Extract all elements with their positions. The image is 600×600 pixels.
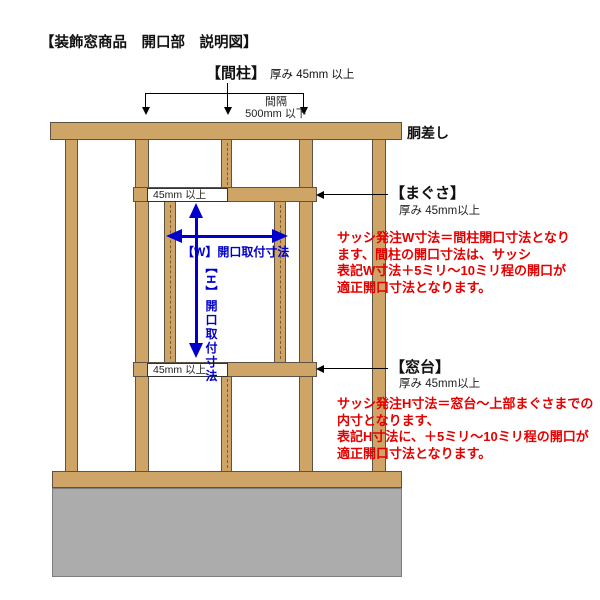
lintel-callout-line (323, 194, 388, 195)
stud-center-lower (221, 375, 232, 472)
base-plate-beam (52, 471, 402, 488)
lintel-label: 【まぐさ】 (390, 182, 465, 203)
down-arrow-icon (224, 107, 232, 115)
down-arrow-icon (142, 107, 150, 115)
h-dimension-label: 【H】開口取付寸法 (203, 261, 220, 384)
stud-center-upper (221, 139, 232, 189)
girder-beam (50, 122, 402, 140)
foundation-block (52, 488, 402, 577)
w-dimension-label: 【W】開口取付寸法 (182, 243, 289, 260)
left-arrow-icon (316, 365, 324, 373)
sill-note: 厚み 45mm以上 (399, 375, 480, 391)
left-arrow-icon (316, 191, 324, 199)
lintel-note: 厚み 45mm以上 (399, 202, 480, 218)
h-dimension-line (195, 212, 198, 348)
left-arrow-icon (166, 229, 182, 243)
sill-callout-line (323, 368, 388, 369)
diagram-canvas: 【装飾窓商品 開口部 説明図】 【間柱】 厚み 45mm 以上 間隔 500mm… (0, 0, 600, 600)
stud-callout-stem (227, 83, 228, 93)
down-arrow-icon (189, 343, 203, 358)
stud-note: 厚み 45mm 以上 (270, 66, 354, 82)
stud-label: 【間柱】 (206, 62, 266, 83)
spacing-line1: 間隔 (240, 96, 312, 108)
lintel-min-box: 45mm 以上 (147, 188, 228, 202)
bracket-line (145, 93, 304, 94)
girder-label: 胴差し (407, 123, 449, 143)
stud-spacing-note: 間隔 500mm 以下 (240, 96, 312, 120)
w-order-note: サッシ発注W寸法＝間柱開口寸法となり ます、間柱の開口寸法は、サッシ 表記W寸法… (337, 230, 599, 296)
sill-label: 【窓台】 (390, 356, 450, 377)
bracket-drop-left (145, 93, 146, 108)
page-title: 【装飾窓商品 開口部 説明図】 (40, 31, 258, 52)
jamb-stud-left (164, 201, 176, 363)
w-dimension-line (179, 235, 273, 238)
bracket-drop-mid (227, 93, 228, 108)
spacing-line2: 500mm 以下 (240, 108, 312, 120)
h-order-note: サッシ発注H寸法＝窓台〜上部まぐさまでの 内寸となります、 表記H寸法に、＋5ミ… (337, 396, 599, 462)
jamb-stud-right (274, 201, 286, 363)
stud-annotation: 【間柱】 厚み 45mm 以上 (206, 62, 354, 83)
stud-far-left (65, 139, 78, 472)
right-arrow-icon (272, 229, 288, 243)
up-arrow-icon (189, 203, 203, 218)
